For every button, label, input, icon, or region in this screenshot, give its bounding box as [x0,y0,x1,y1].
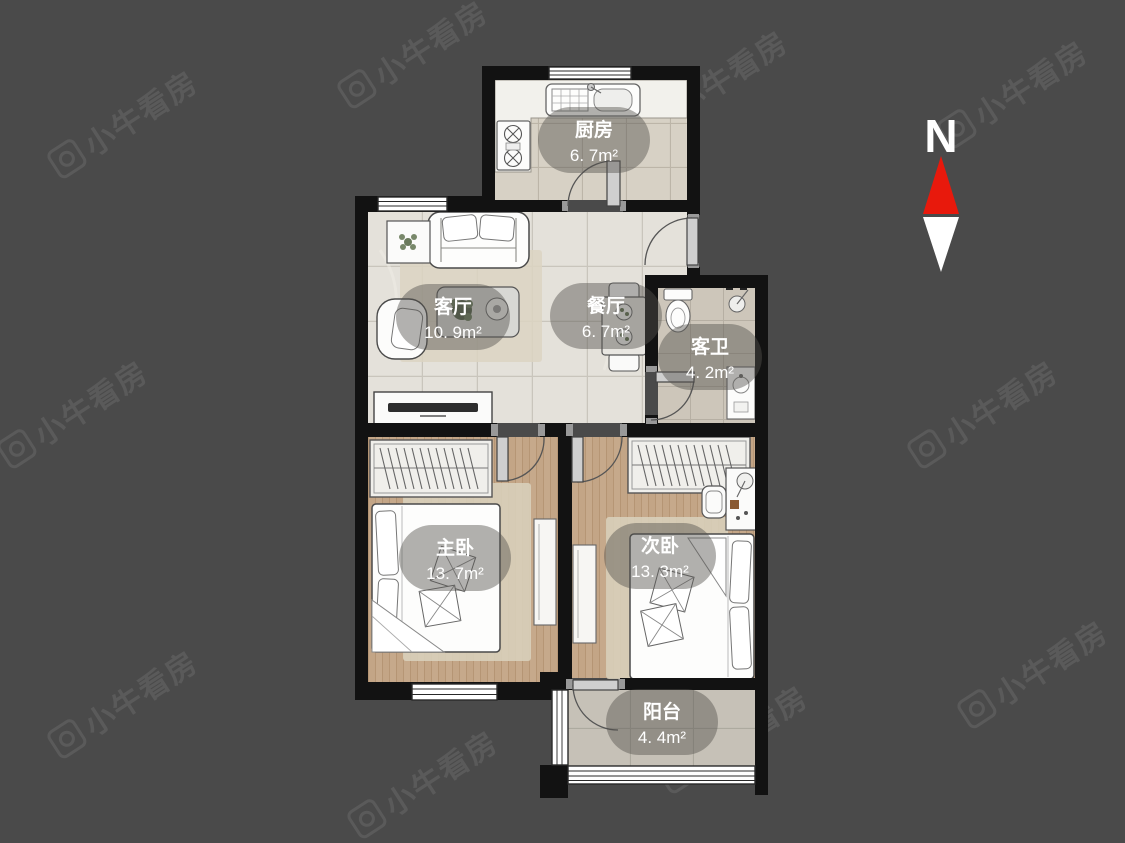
master-window [412,684,497,700]
living-window [378,197,447,211]
floorplan-canvas: 小牛看房 小牛看房 小牛看房 小牛看房 小牛看房 小牛看房 小牛看房 小牛看房 … [0,0,1125,843]
tv-stand [374,392,492,428]
kitchen-stove [497,121,530,170]
room-label-bathroom: 客卫 4. 2m² [658,324,762,390]
balcony-window [568,766,755,784]
room-area: 6. 7m² [570,146,619,165]
desk-chair [702,486,726,518]
decor-pillow [419,585,461,627]
room-label-balcony: 阳台 4. 4m² [606,689,718,755]
compass-north-arrow [923,156,959,214]
compass-north-label: N [924,110,957,162]
room-name: 次卧 [641,534,679,557]
room-area: 4. 2m² [686,363,735,382]
second-side-cabinet [573,545,596,643]
desk [726,468,758,530]
room-label-master-bedroom: 主卧 13. 7m² [399,525,511,591]
room-name: 餐厅 [587,294,625,317]
room-name: 阳台 [643,700,681,723]
room-label-living: 客厅 10. 9m² [396,284,510,350]
room-area: 13. 3m² [631,562,689,581]
room-name: 客厅 [434,295,472,318]
room-name: 厨房 [575,118,613,141]
dining-chair [609,353,639,371]
room-label-second-bedroom: 次卧 13. 3m² [604,523,716,589]
compass: N [923,110,959,272]
room-area: 13. 7m² [426,564,484,583]
master-wardrobe [370,440,492,497]
room-area: 4. 4m² [638,728,687,747]
pillow [729,607,751,670]
pillow [375,511,398,576]
master-side-cabinet [534,519,556,625]
floorplan-svg: 厨房 6. 7m² 客厅 10. 9m² 餐厅 6. 7m² 客卫 4. 2m²… [0,0,1125,843]
room-area: 10. 9m² [424,323,482,342]
kitchen-window [549,67,631,79]
decor-pillow [641,604,684,647]
sofa [428,212,529,268]
room-label-dining: 餐厅 6. 7m² [550,283,662,349]
side-table [387,221,430,263]
room-name: 主卧 [436,537,474,559]
room-label-kitchen: 厨房 6. 7m² [538,107,650,173]
room-name: 客卫 [691,335,729,358]
balcony-side-window [552,690,568,765]
compass-south-arrow [923,217,959,272]
pillow [729,541,751,604]
room-area: 6. 7m² [582,322,631,341]
